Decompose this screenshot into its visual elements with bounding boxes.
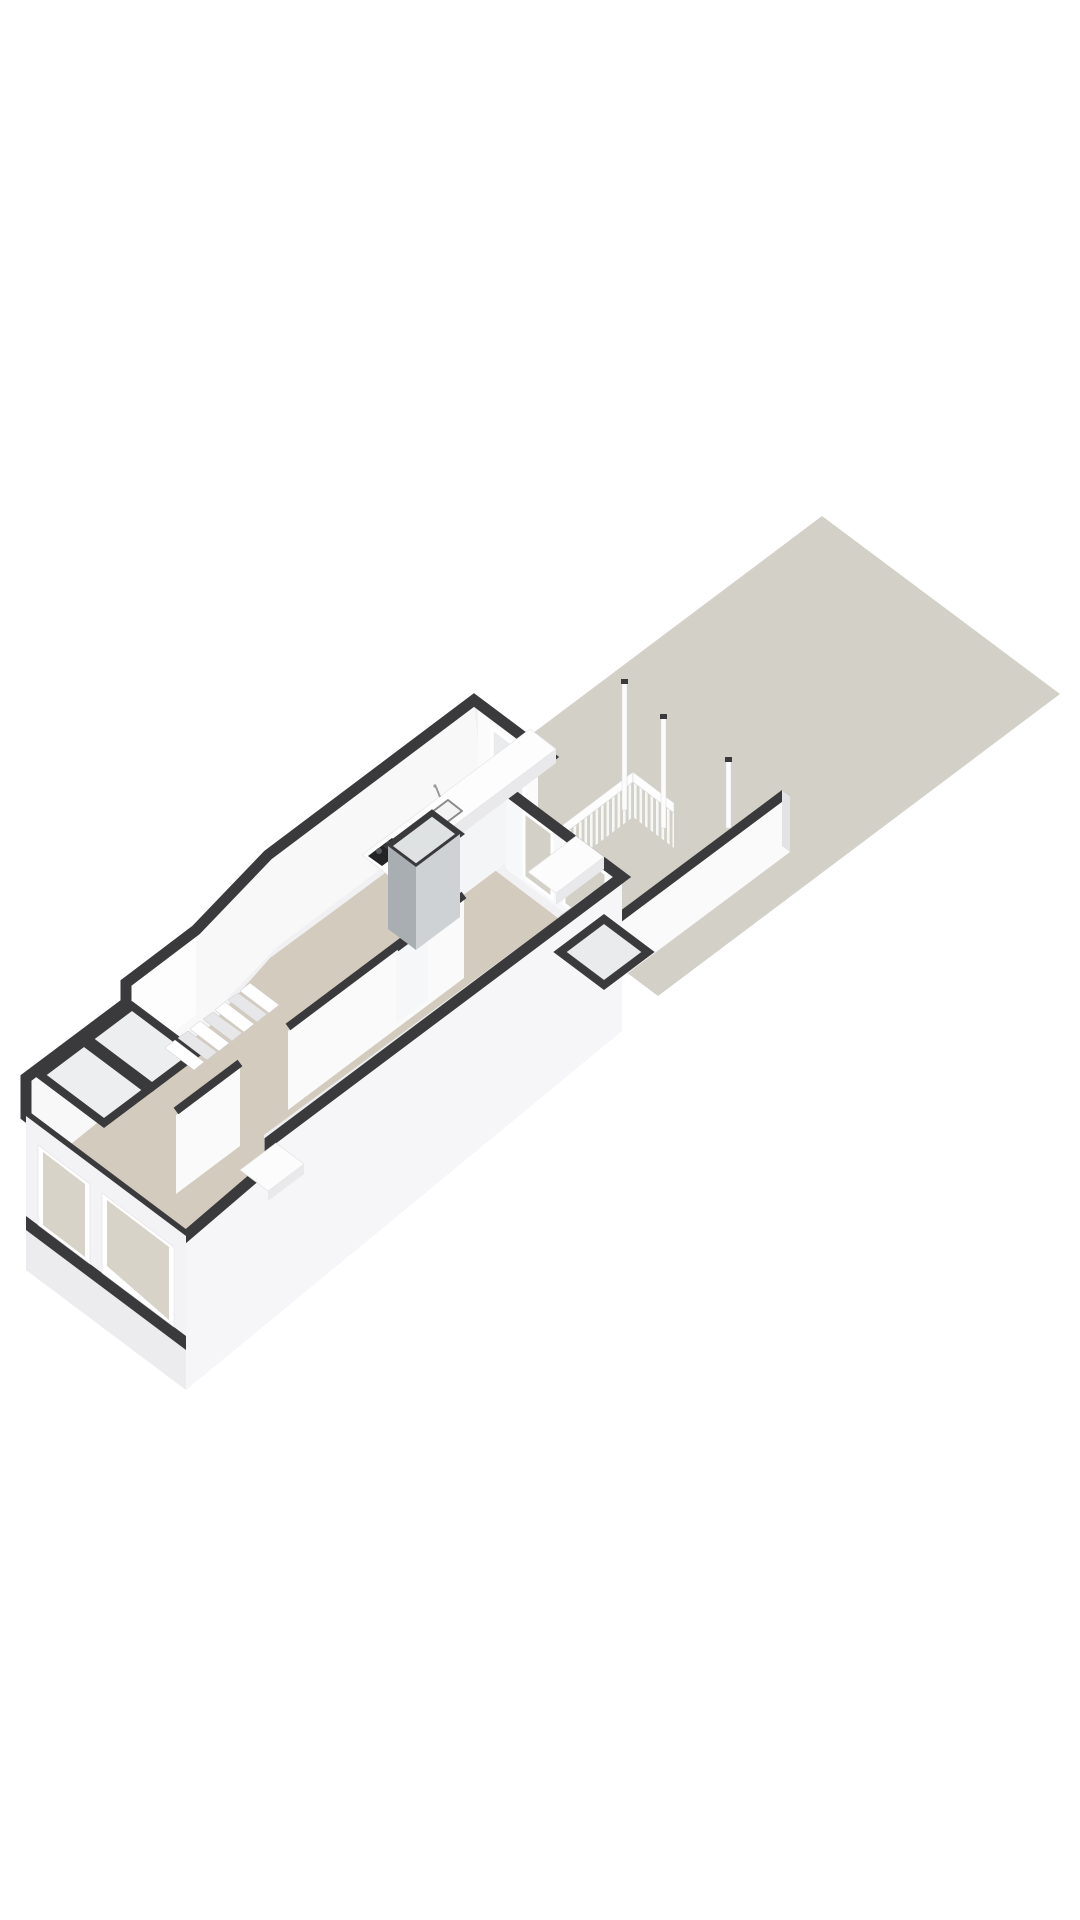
floorplan-3d-render: [0, 0, 1080, 1920]
stove-burner-1: [376, 848, 382, 854]
porch-post-1-cap: [621, 679, 628, 684]
kitchen-faucet-head: [433, 784, 436, 787]
porch-post-3-cap: [725, 757, 732, 762]
porch-post-2: [661, 717, 666, 828]
shape-root: [26, 516, 1060, 1390]
garden-wall-end: [782, 790, 790, 852]
porch-post-1: [622, 682, 627, 810]
porch-post-3: [726, 760, 731, 828]
porch-post-2-cap: [660, 714, 667, 719]
floorplan-canvas: [0, 0, 1080, 1920]
